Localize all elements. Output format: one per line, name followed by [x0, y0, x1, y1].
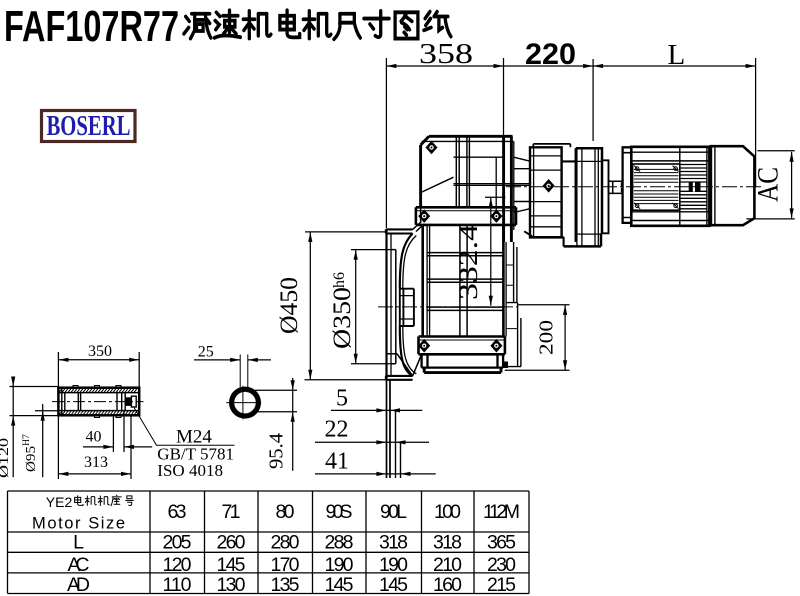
svg-text:63: 63 [168, 501, 187, 523]
svg-text:205: 205 [163, 532, 192, 554]
svg-text:260: 260 [217, 532, 246, 554]
svg-text:135: 135 [271, 574, 300, 596]
svg-text:FAF107R77: FAF107R77 [4, 2, 179, 51]
svg-text:Ø350: Ø350 [329, 287, 356, 349]
svg-text:41: 41 [325, 449, 349, 475]
svg-text:220: 220 [525, 38, 576, 71]
svg-text:358: 358 [419, 39, 473, 70]
svg-text:Motor Size: Motor Size [32, 514, 125, 532]
svg-text:288: 288 [325, 532, 354, 554]
svg-text:332.4: 332.4 [454, 224, 483, 300]
svg-text:280: 280 [271, 532, 300, 554]
svg-text:90L: 90L [380, 501, 407, 523]
svg-text:130: 130 [217, 574, 246, 596]
svg-text:L: L [73, 532, 84, 554]
svg-text:95.4: 95.4 [266, 433, 288, 469]
svg-text:318: 318 [433, 532, 462, 554]
svg-text:H7: H7 [22, 434, 32, 446]
svg-text:5: 5 [336, 386, 348, 412]
svg-text:L: L [668, 39, 686, 71]
svg-text:22: 22 [325, 417, 349, 443]
svg-text:200: 200 [536, 320, 558, 355]
svg-text:AD: AD [67, 574, 90, 596]
svg-text:350: 350 [88, 343, 112, 360]
svg-text:90S: 90S [326, 501, 353, 523]
svg-text:Ø95: Ø95 [24, 446, 39, 472]
svg-text:145: 145 [379, 574, 408, 596]
svg-text:112M: 112M [483, 501, 520, 523]
svg-text:BOSERL: BOSERL [47, 111, 131, 142]
svg-text:318: 318 [379, 532, 408, 554]
svg-text:AC: AC [68, 554, 90, 576]
svg-text:190: 190 [325, 554, 354, 576]
svg-text:160: 160 [433, 574, 462, 596]
svg-text:170: 170 [271, 554, 300, 576]
svg-text:Ø450: Ø450 [276, 277, 303, 334]
svg-text:145: 145 [217, 554, 246, 576]
svg-text:230: 230 [487, 554, 516, 576]
svg-text:100: 100 [434, 501, 461, 523]
svg-text:80: 80 [276, 501, 295, 523]
svg-text:Ø120: Ø120 [0, 438, 12, 478]
svg-text:YE2: YE2 [46, 494, 73, 510]
svg-text:313: 313 [84, 454, 108, 471]
svg-text:365: 365 [487, 532, 516, 554]
svg-text:h6: h6 [331, 272, 348, 288]
svg-text:145: 145 [325, 574, 354, 596]
svg-text:AC: AC [752, 167, 785, 202]
svg-text:215: 215 [487, 574, 516, 596]
svg-text:110: 110 [163, 574, 192, 596]
svg-text:40: 40 [86, 429, 102, 446]
svg-text:120: 120 [163, 554, 192, 576]
svg-text:71: 71 [222, 501, 241, 523]
svg-text:25: 25 [198, 344, 214, 361]
svg-text:ISO 4018: ISO 4018 [157, 461, 223, 480]
svg-text:210: 210 [433, 554, 462, 576]
svg-text:190: 190 [379, 554, 408, 576]
